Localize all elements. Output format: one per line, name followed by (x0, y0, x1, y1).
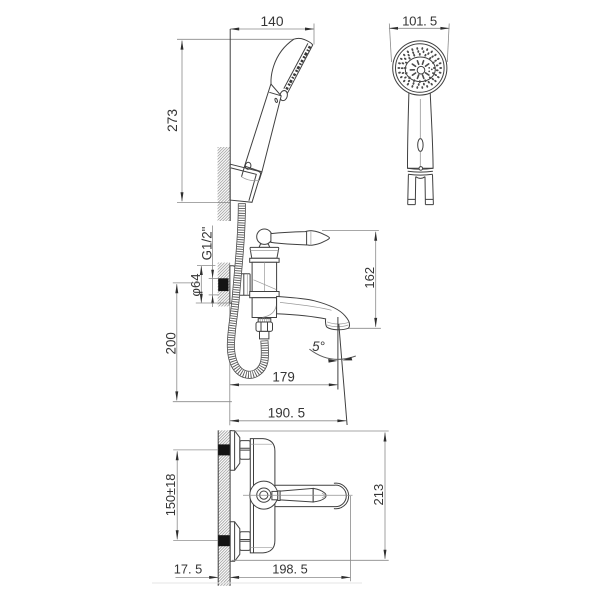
svg-text:162: 162 (362, 267, 377, 289)
svg-text:179: 179 (272, 370, 294, 385)
svg-text:5°: 5° (312, 339, 325, 354)
svg-text:200: 200 (164, 332, 179, 354)
svg-text:150±18: 150±18 (163, 474, 178, 517)
svg-text:101. 5: 101. 5 (402, 14, 437, 29)
svg-text:213: 213 (371, 484, 386, 506)
svg-text:G1/2": G1/2" (200, 226, 215, 260)
svg-text:273: 273 (165, 109, 180, 132)
svg-text:190. 5: 190. 5 (268, 406, 305, 421)
svg-text:140: 140 (260, 14, 283, 29)
svg-text:φ64: φ64 (188, 274, 203, 297)
svg-text:17. 5: 17. 5 (174, 561, 202, 576)
svg-text:198. 5: 198. 5 (272, 561, 308, 576)
